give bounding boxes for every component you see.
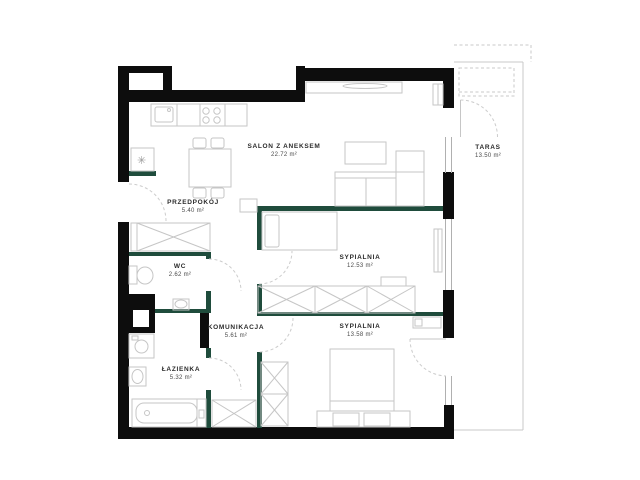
svg-text:✳: ✳ [137, 155, 146, 167]
dining-table-icon [189, 138, 231, 198]
room-label-sypialnia-2: SYPIALNIA 13.58 m² [340, 323, 381, 338]
toilet-icon [129, 266, 153, 284]
wardrobe-bedroom1-icon [258, 286, 415, 313]
wardrobe-corridor-icon [212, 400, 256, 427]
floor-plan-drawing: ✳ [0, 0, 640, 480]
kitchen-counter-icon [151, 104, 247, 126]
room-label-wc: WC 2.62 m² [169, 263, 191, 278]
console-hallway-icon [240, 199, 257, 212]
bathtub-icon [132, 399, 206, 427]
sideboard-tv-icon [306, 82, 402, 93]
wc-sink-icon [173, 299, 189, 310]
radiator-bedroom1-icon [434, 229, 442, 272]
wardrobe-hallway-icon [131, 223, 210, 251]
sofa-icon [335, 151, 424, 206]
room-label-lazienka: ŁAZIENKA 5.32 m² [162, 366, 200, 381]
single-bed-icon [262, 212, 337, 250]
washing-machine-icon [129, 334, 154, 358]
floor-plan-canvas: ✳ [0, 0, 640, 480]
radiator-salon-icon [433, 84, 443, 105]
terrace-outline [454, 45, 531, 430]
stove-icon [203, 108, 220, 123]
room-label-salon: SALON Z ANEKSEM 22.72 m² [247, 143, 320, 158]
room-label-sypialnia-1: SYPIALNIA 12.53 m² [340, 254, 381, 269]
double-bed-icon [317, 349, 410, 427]
room-label-komunikacja: KOMUNIKACJA 5.61 m² [208, 324, 264, 339]
desk-bedroom2-icon [413, 317, 441, 328]
fridge-icon: ✳ [131, 148, 154, 171]
room-label-taras: TARAS 13.50 m² [475, 144, 501, 159]
room-label-przedpokoj: PRZEDPOKÓJ 5.40 m² [167, 199, 219, 214]
wardrobe-bedroom2-icon [261, 362, 288, 426]
coffee-table-icon [345, 142, 386, 164]
bathroom-sink-icon [129, 367, 146, 386]
desk-bedroom1-icon [381, 277, 406, 286]
